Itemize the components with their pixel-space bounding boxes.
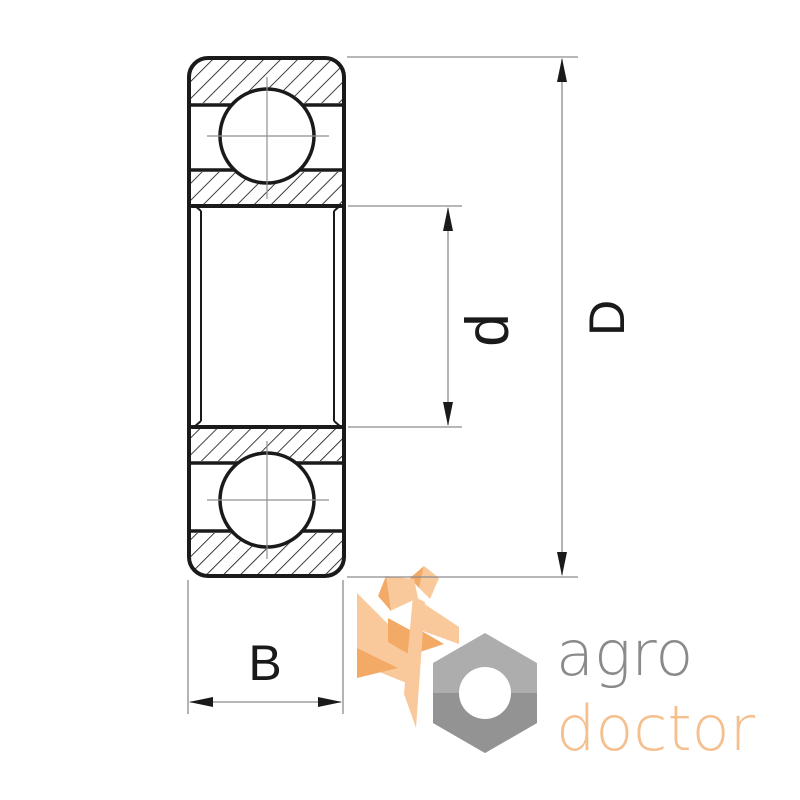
logo-text-agro: agro [556, 617, 693, 690]
wheat-stem [404, 596, 425, 728]
arrow-B-right [318, 697, 342, 707]
arrow-D-down [557, 552, 567, 576]
arrow-B-left [189, 697, 213, 707]
arrow-d-down [443, 402, 453, 426]
logo-text-doctor: doctor [556, 692, 756, 765]
agrodoctor-logo: agro doctor [357, 566, 756, 765]
dim-label-outer-diameter: D [579, 300, 635, 336]
arrow-D-up [557, 58, 567, 82]
dim-label-width: B [248, 635, 281, 691]
page: agro doctor [0, 0, 800, 800]
arrow-d-up [443, 207, 453, 231]
dim-label-bore-diameter: d [454, 313, 521, 346]
nut-hole [459, 667, 511, 719]
bearing-diagram: agro doctor [0, 0, 800, 800]
nut-icon [433, 633, 537, 753]
